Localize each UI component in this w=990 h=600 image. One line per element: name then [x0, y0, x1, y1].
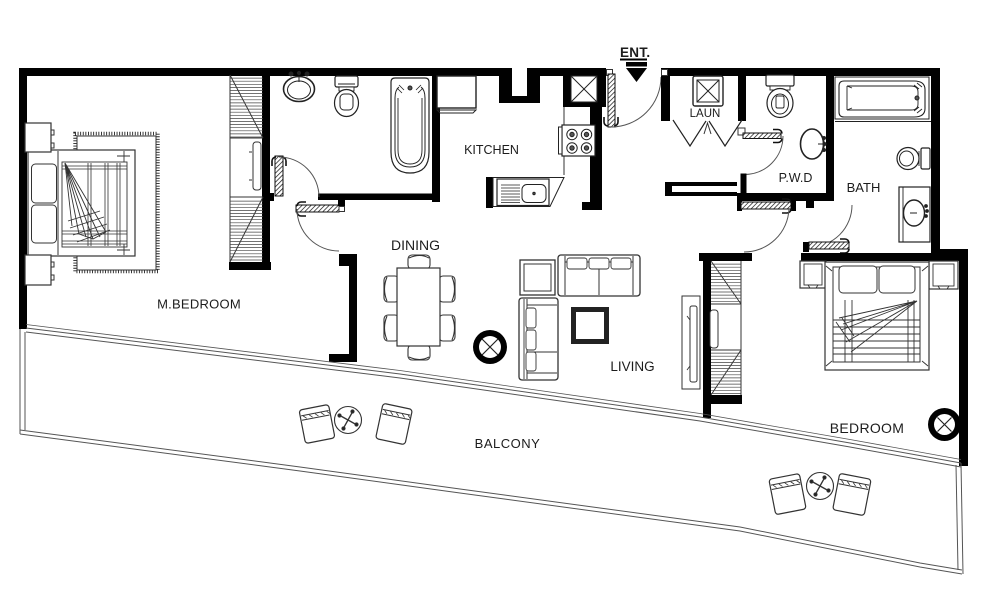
- svg-text:LIVING: LIVING: [610, 359, 654, 374]
- svg-text:KITCHEN: KITCHEN: [464, 143, 519, 157]
- svg-text:BATH: BATH: [847, 180, 881, 195]
- svg-text:M.BEDROOM: M.BEDROOM: [157, 297, 241, 312]
- svg-text:ENT.: ENT.: [620, 45, 650, 60]
- svg-text:P.W.D: P.W.D: [779, 171, 813, 185]
- svg-text:BALCONY: BALCONY: [475, 436, 541, 451]
- svg-text:DINING: DINING: [391, 237, 440, 253]
- svg-text:LAUN: LAUN: [690, 108, 721, 120]
- svg-text:BEDROOM: BEDROOM: [830, 420, 904, 436]
